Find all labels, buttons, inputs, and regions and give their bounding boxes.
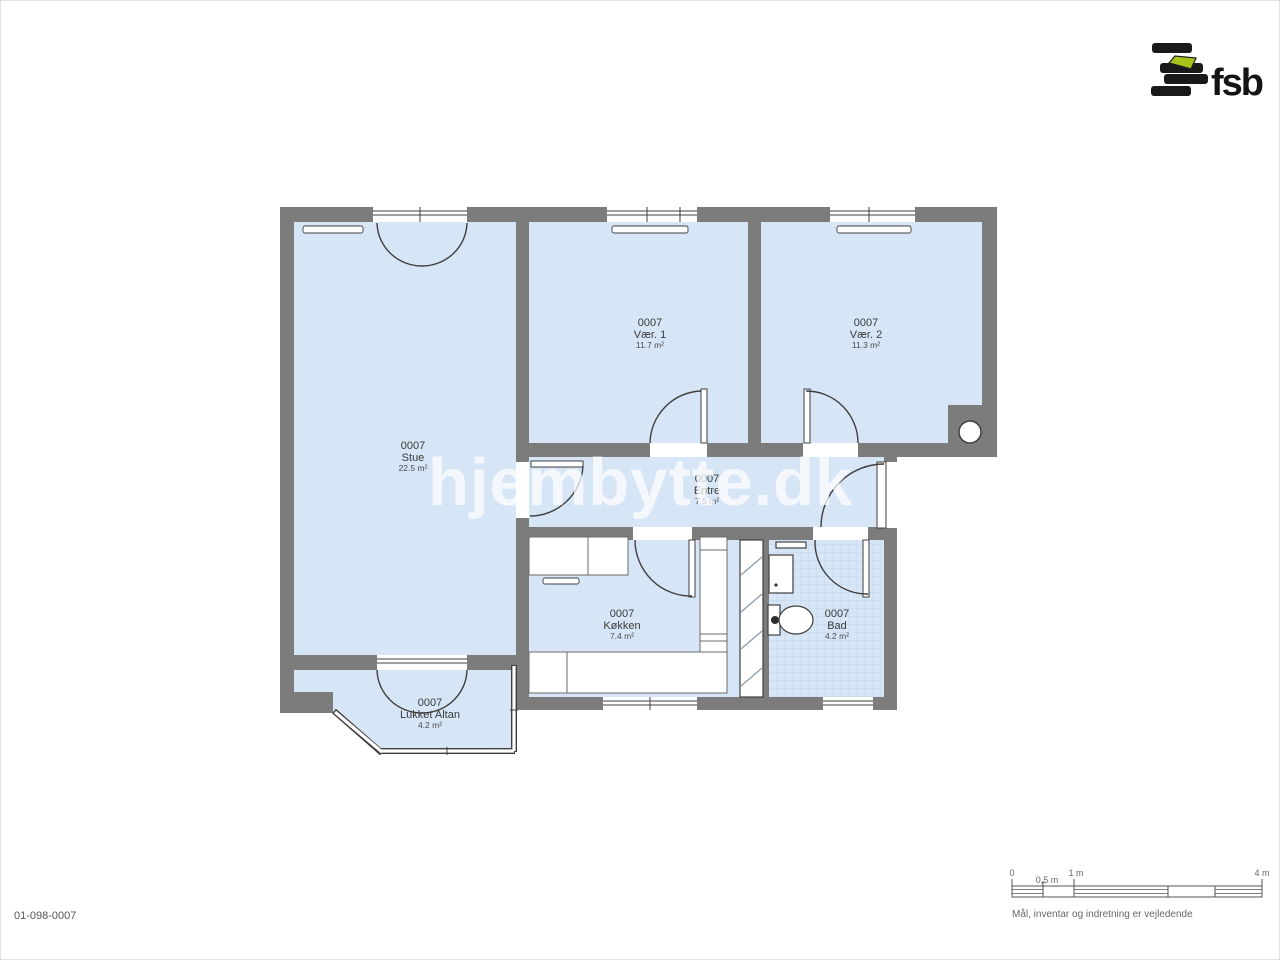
floorplan-drawing: 0007 Stue 22.5 m² 0007 Vær. 1 11.7 m² 00… bbox=[0, 0, 1280, 960]
drawing-number: 01-098-0007 bbox=[14, 910, 76, 922]
bad-label-id: 0007 bbox=[825, 608, 849, 620]
toilet-bowl bbox=[779, 606, 813, 634]
front-door-leaf bbox=[877, 462, 886, 528]
bad-label-area: 4.2 m² bbox=[825, 631, 849, 641]
stue-entre-door-leaf bbox=[531, 461, 583, 467]
bath-sink-drain bbox=[774, 583, 777, 586]
wall-stue-right bbox=[516, 207, 529, 710]
vaer1-label-id: 0007 bbox=[638, 317, 662, 329]
vaer2-radiator bbox=[837, 226, 911, 233]
scale-tick-0: 0 bbox=[1009, 868, 1014, 878]
stue-floor bbox=[294, 222, 516, 655]
bath-shelf bbox=[776, 542, 806, 548]
scale-note: Mål, inventar og indretning er vejledend… bbox=[1012, 908, 1193, 920]
stue-label-area: 22.5 m² bbox=[399, 463, 428, 473]
kitchen-counter-top bbox=[529, 537, 628, 575]
altan-label-id: 0007 bbox=[418, 697, 442, 709]
vaer1-door-leaf bbox=[701, 389, 707, 443]
fsb-logo: fsb bbox=[1151, 43, 1263, 104]
vent-shaft bbox=[740, 540, 763, 697]
stue-radiator bbox=[303, 226, 363, 233]
opening-stue-entre-door bbox=[516, 462, 529, 518]
opening-vaer1-door bbox=[650, 443, 707, 457]
vaer2-door-leaf bbox=[804, 389, 810, 443]
vaer2-label-id: 0007 bbox=[854, 317, 878, 329]
stue-label-id: 0007 bbox=[401, 440, 425, 452]
bath-sink bbox=[769, 555, 793, 593]
koekken-label-area: 7.4 m² bbox=[610, 631, 634, 641]
koekken-door-leaf bbox=[689, 540, 695, 597]
scale-tick-1: 1 m bbox=[1068, 868, 1083, 878]
wall-left bbox=[280, 207, 294, 713]
bad-door-leaf bbox=[863, 540, 869, 597]
koekken-radiator bbox=[543, 578, 579, 584]
wall-under-vaer2 bbox=[884, 443, 997, 457]
kitchen-counter-bottom bbox=[529, 652, 727, 693]
opening-vaer2-door bbox=[803, 443, 858, 457]
fsb-logo-text: fsb bbox=[1211, 62, 1263, 104]
opening-bad-window bbox=[823, 697, 873, 710]
entre-label-id: 0007 bbox=[695, 473, 719, 485]
wall-altan-step bbox=[280, 692, 333, 713]
wall-vaer1-vaer2 bbox=[748, 207, 761, 457]
opening-bad-door bbox=[813, 527, 868, 540]
koekken-label-id: 0007 bbox=[610, 608, 634, 620]
fsb-logo-bars bbox=[1151, 43, 1208, 96]
scale-tick-05: 0,5 m bbox=[1036, 875, 1059, 885]
vaer1-label-area: 11.7 m² bbox=[636, 340, 664, 350]
altan-label-area: 4.2 m² bbox=[418, 720, 442, 730]
scale-tick-4: 4 m bbox=[1254, 868, 1269, 878]
floorplan-page: 0007 Stue 22.5 m² 0007 Vær. 1 11.7 m² 00… bbox=[0, 0, 1280, 960]
vaer2-label-area: 11.3 m² bbox=[852, 340, 880, 350]
vaer1-radiator bbox=[612, 226, 688, 233]
pipe-duct bbox=[959, 421, 981, 443]
entre-label-area: 7.5 m² bbox=[695, 496, 719, 506]
scale-bar: 0 0,5 m 1 m 4 m Mål, inventar og indretn… bbox=[1009, 868, 1269, 920]
toilet-flush bbox=[771, 616, 779, 624]
opening-koekken-door bbox=[633, 527, 692, 540]
